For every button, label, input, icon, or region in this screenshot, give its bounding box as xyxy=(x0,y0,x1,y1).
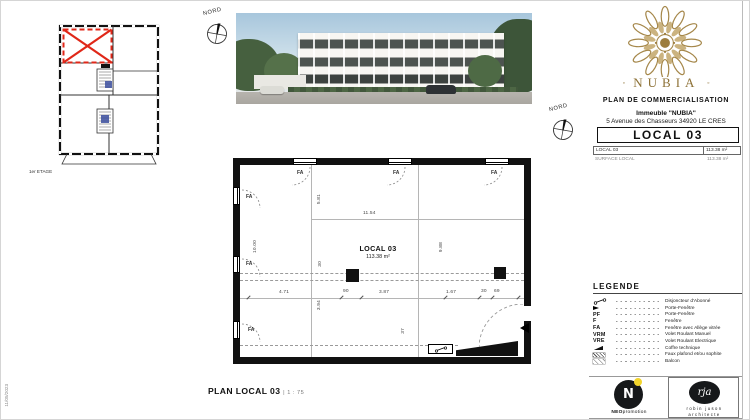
right-wall xyxy=(524,158,531,364)
building-render-photo xyxy=(236,13,532,104)
dim-label: 30 xyxy=(318,261,323,267)
surface-table: LOCAL 03 113.38 m² SURFACE LOCAL 113.38 … xyxy=(593,146,741,163)
building-address: 5 Avenue des Chasseurs 34920 LE CRES xyxy=(589,118,743,125)
key-plan-floor-label: 1er ETAGE xyxy=(29,169,52,174)
footer-plan-title: PLAN LOCAL 03 | 1 : 75 xyxy=(208,386,304,396)
fa-window-label: FA xyxy=(491,170,497,176)
building-name: Immeuble "NUBIA" xyxy=(589,110,743,117)
legend-symbol: VRE xyxy=(593,338,613,344)
window xyxy=(388,158,412,165)
legend-dots xyxy=(616,341,662,342)
nubia-logo-mandala xyxy=(627,5,703,77)
disjoncteur-icon xyxy=(593,298,607,305)
dim-label: 1.67 xyxy=(446,290,456,295)
disjoncteur-box xyxy=(428,344,453,354)
table-cell-value: 113.38 m² xyxy=(705,156,741,163)
legend-symbol: F xyxy=(593,318,613,324)
hatch-dense-icon xyxy=(593,353,605,358)
local-title-box: LOCAL 03 xyxy=(597,127,739,143)
legend-symbol: FA xyxy=(593,325,613,331)
window xyxy=(233,256,240,273)
soffit-dashed-line xyxy=(240,280,524,281)
architect-logo-cell: rja robin juson architecte xyxy=(668,377,739,418)
fa-window-label: FA xyxy=(248,327,254,333)
floor-plan: FA FA FA FA FA FA LOCAL 03 113.38 m² 11.… xyxy=(233,158,531,364)
document-title: PLAN DE COMMERCIALISATION xyxy=(589,97,743,104)
dim-label: 30 xyxy=(481,289,487,294)
legend-item: PF Porte-Fenêtre xyxy=(593,311,743,318)
legend-dots xyxy=(616,321,662,322)
car xyxy=(260,86,284,94)
footer-scale: | 1 : 75 xyxy=(283,390,304,396)
fa-window-label: FA xyxy=(297,170,303,176)
legend-dots xyxy=(616,314,662,315)
legend-symbol: VRM xyxy=(593,332,613,338)
entrance-arrow-icon xyxy=(520,323,529,333)
neo-promotion-name: NEOpromotion xyxy=(602,410,656,415)
dim-label: 3.94 xyxy=(317,300,322,310)
legend-dots xyxy=(616,328,662,329)
dim-label: 69 xyxy=(494,289,500,294)
dim-label: 9.88 xyxy=(439,242,444,252)
room-label: LOCAL 03 xyxy=(328,244,428,253)
plan-sheet: 11/05/2023 1er ETAGE NORD xyxy=(0,0,750,420)
hatch-light-icon xyxy=(593,359,605,364)
legend-dots xyxy=(616,308,662,309)
legend-symbol: PF xyxy=(593,312,613,318)
divider xyxy=(589,418,742,419)
dimension-line xyxy=(240,298,524,299)
legend-dots xyxy=(616,301,662,302)
bottom-wall xyxy=(233,357,531,364)
coffre-technique xyxy=(346,269,359,282)
neo-logo-yellow-dot xyxy=(634,378,642,386)
dim-label: 11.54 xyxy=(363,211,376,216)
fa-window-label: FA xyxy=(246,194,252,200)
window xyxy=(293,158,317,165)
sheet-date: 11/05/2023 xyxy=(4,384,9,407)
porte-fenetre-triangle-icon xyxy=(593,306,599,310)
dim-label: 5.81 xyxy=(317,194,322,204)
key-plan-drawing xyxy=(57,23,161,169)
page-border xyxy=(742,1,743,420)
table-cell-label: LOCAL 03 xyxy=(594,147,703,154)
legend-item: Faux plafond et/ou sophite xyxy=(593,352,743,359)
fa-window-label: FA xyxy=(393,170,399,176)
legend-item: VRM Volet Roulant Manuel xyxy=(593,331,743,338)
legend-dots xyxy=(616,361,662,362)
fa-window-label: FA xyxy=(246,261,252,267)
room-area: 113.38 m² xyxy=(328,254,428,260)
table-row: LOCAL 03 113.38 m² xyxy=(593,146,741,155)
legend-title: LEGENDE xyxy=(593,282,743,291)
window-arc xyxy=(483,166,503,186)
dim-label: 37 xyxy=(401,328,406,334)
legend-item: Balcon xyxy=(593,358,743,365)
legend-dots xyxy=(616,354,662,355)
rja-logo: rja xyxy=(689,381,720,404)
legend-item: Coffre technique xyxy=(593,345,743,352)
legend: LEGENDE Disjoncteur d'Abonné Porte-Fenêt… xyxy=(593,282,743,365)
grid-line xyxy=(418,165,419,357)
brand-name: NUBIA xyxy=(633,75,698,90)
window xyxy=(485,158,509,165)
legend-dots xyxy=(616,348,662,349)
window-arc xyxy=(291,166,311,186)
table-row: SURFACE LOCAL 113.38 m² xyxy=(593,156,741,163)
grid-line xyxy=(311,165,312,357)
window xyxy=(233,321,240,339)
dim-label: 4.71 xyxy=(279,290,289,295)
north-compass-icon: NORD xyxy=(201,9,235,49)
legend-item: F Fenêtre xyxy=(593,318,743,325)
soffit-dashed-line xyxy=(240,273,524,274)
legend-item: Disjoncteur d'Abonné xyxy=(593,298,743,305)
dim-label: 90 xyxy=(343,289,349,294)
legend-dots xyxy=(616,334,662,335)
north-compass-icon: NORD xyxy=(547,105,581,145)
tree xyxy=(468,55,502,87)
soffit-dashed-line xyxy=(240,345,458,346)
dim-label: 3.87 xyxy=(379,290,389,295)
dim-label: 10.00 xyxy=(253,240,258,253)
table-cell-label: SURFACE LOCAL xyxy=(593,156,705,163)
architect-title: architecte xyxy=(669,412,740,417)
table-cell-value: 113.38 m² xyxy=(703,147,740,154)
legend-item: Porte-Fenêtre xyxy=(593,305,743,312)
coffre-icon xyxy=(593,346,603,351)
divider xyxy=(593,293,743,294)
legend-item: FA Fenêtre avec Allège vitrée xyxy=(593,325,743,332)
dimension-line xyxy=(311,219,524,220)
window-arc xyxy=(386,166,406,186)
architect-name: robin juson xyxy=(669,406,740,411)
key-plan xyxy=(57,23,161,169)
coffre-technique xyxy=(494,267,506,279)
brand-wordmark: ◦ NUBIA ◦ xyxy=(589,75,743,91)
door-opening xyxy=(524,306,531,321)
window xyxy=(233,187,240,205)
window-arc xyxy=(241,323,261,343)
car xyxy=(426,85,456,94)
disjoncteur-icon xyxy=(434,346,448,353)
legend-item: VRE Volet Roulant Electrique xyxy=(593,338,743,345)
